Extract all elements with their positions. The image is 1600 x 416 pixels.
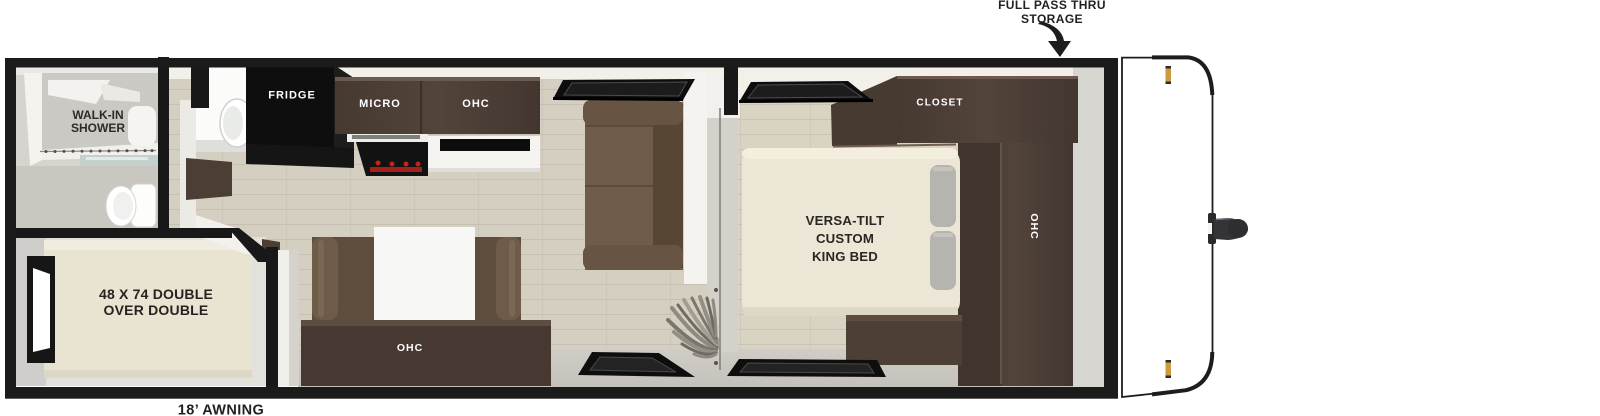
svg-text:OHC: OHC [397, 342, 423, 354]
svg-text:MICRO: MICRO [359, 98, 401, 110]
svg-text:SHOWER: SHOWER [71, 121, 125, 135]
svg-text:OHC: OHC [1028, 213, 1040, 239]
svg-text:KING BED: KING BED [812, 249, 878, 264]
svg-text:48 X 74 DOUBLE: 48 X 74 DOUBLE [99, 286, 213, 302]
svg-text:WALK-IN: WALK-IN [72, 108, 123, 122]
svg-text:STORAGE: STORAGE [1021, 12, 1083, 26]
svg-text:FRIDGE: FRIDGE [268, 90, 316, 102]
svg-text:CLOSET: CLOSET [916, 98, 963, 109]
svg-text:18’ AWNING: 18’ AWNING [178, 403, 264, 416]
svg-text:OVER DOUBLE: OVER DOUBLE [104, 302, 209, 318]
svg-text:CUSTOM: CUSTOM [816, 231, 874, 246]
svg-text:VERSA-TILT: VERSA-TILT [806, 213, 885, 228]
svg-text:FULL PASS THRU: FULL PASS THRU [998, 0, 1106, 12]
svg-text:OHC: OHC [462, 98, 489, 110]
